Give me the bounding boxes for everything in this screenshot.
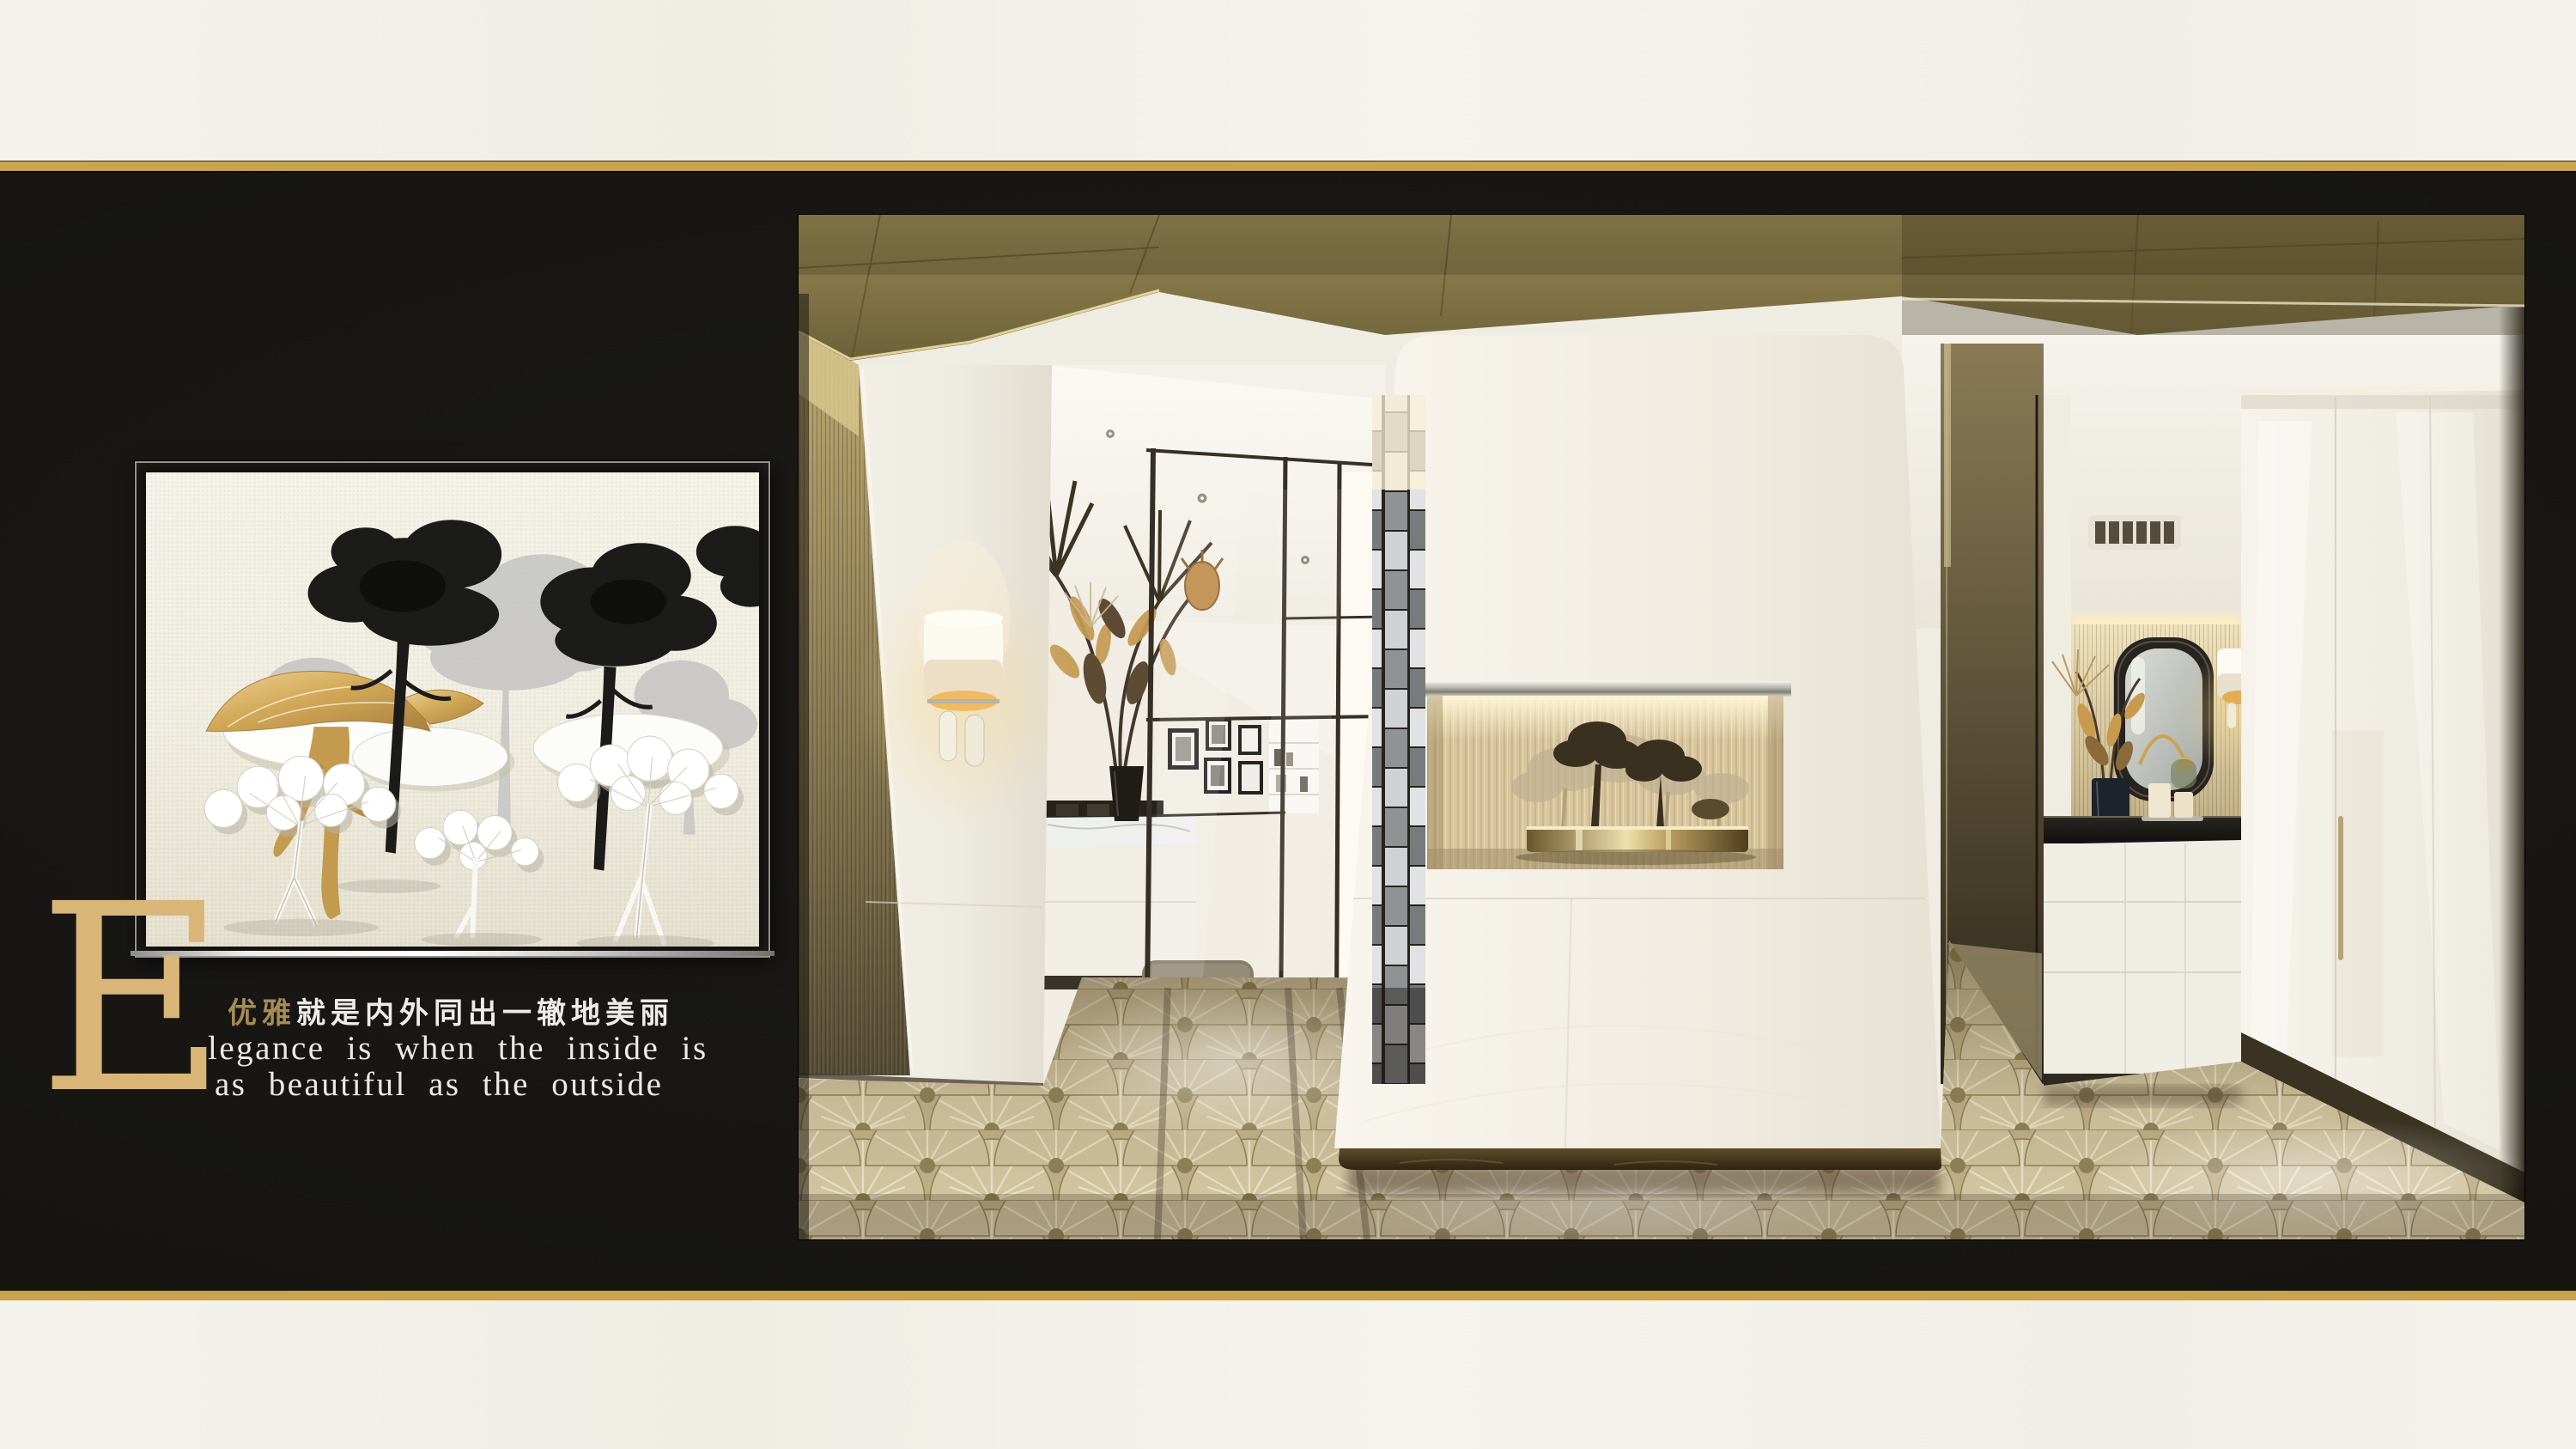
page: E 优雅就是内外同出一辙地美丽 legance is when the insi… xyxy=(0,0,2576,1449)
monolith-plinth xyxy=(1339,1148,1941,1170)
air-vent xyxy=(2088,515,2181,550)
drop-cap-E: E xyxy=(38,871,227,1130)
interior-photo xyxy=(799,215,2524,1239)
framed-artwork xyxy=(135,461,770,958)
top-texture-band xyxy=(0,0,2576,161)
photo-left-walls xyxy=(799,331,1071,1086)
mosaic-pilaster xyxy=(1372,395,1425,1084)
bottom-texture-band xyxy=(0,1300,2576,1449)
tagline-en-line1: legance is when the inside is xyxy=(208,1029,708,1068)
display-niche xyxy=(1427,696,1783,869)
headline-zh-highlight: 优雅 xyxy=(228,997,296,1030)
top-gold-divider xyxy=(0,161,2576,171)
wardrobe xyxy=(2241,387,2524,1204)
vanity-drawers xyxy=(2044,843,2241,1086)
tagline-en-line2: as beautiful as the outside xyxy=(215,1065,663,1104)
photo-right-vignette xyxy=(2499,294,2524,1239)
artwork-bottom-silver-line xyxy=(131,951,775,956)
artwork-canvas xyxy=(146,472,759,947)
headline-zh-rest: 就是内外同出一辙地美丽 xyxy=(296,997,674,1030)
bottom-gold-divider xyxy=(0,1291,2576,1300)
central-monolith xyxy=(1334,335,1941,1170)
headline-zh: 优雅就是内外同出一辙地美丽 xyxy=(228,989,674,1032)
niche-metal-trim xyxy=(1420,681,1791,697)
